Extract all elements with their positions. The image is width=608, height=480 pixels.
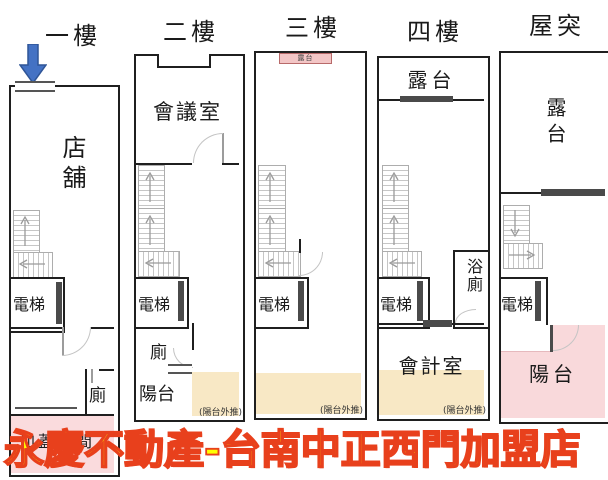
- elevator-door-bar: [298, 281, 304, 321]
- window-bar: [400, 96, 453, 102]
- room-label-terrace: 露台: [541, 97, 570, 149]
- window-lines: [168, 364, 192, 374]
- balcony-outset-note: (陽台外推): [443, 403, 486, 416]
- wall-notch: [157, 54, 211, 68]
- balcony-outset-note: (陽台外推): [320, 403, 363, 416]
- door-arc: [62, 327, 91, 356]
- plan-3f: 露台 電梯 (陽台外推): [254, 51, 367, 420]
- front-terrace-box: 露台: [279, 53, 332, 64]
- wall: [192, 323, 194, 350]
- window-bar: [423, 320, 452, 327]
- room-label-elevator: 電梯: [138, 291, 170, 315]
- wall: [222, 163, 239, 165]
- floor-title-roof: 屋突: [522, 6, 592, 41]
- elevator-door-bar: [417, 281, 423, 321]
- stair-arrow-up-icon: [388, 169, 400, 205]
- wall: [91, 327, 114, 329]
- entrance-door-lines: [15, 81, 55, 92]
- room-label-accounting: 會計室: [379, 350, 484, 379]
- wall: [11, 327, 63, 329]
- entrance-arrow-icon: [19, 44, 47, 84]
- room-label-terrace: 露台: [379, 64, 484, 93]
- elevator-door-bar: [56, 282, 62, 324]
- room-label-toilet: 廁: [89, 381, 106, 406]
- elevator-door-bar: [178, 281, 184, 321]
- room-label-elevator: 電梯: [258, 291, 290, 315]
- door-arc: [299, 252, 323, 276]
- elevator-door-bar: [535, 281, 541, 321]
- plan-2f: 會議室 電梯 廁 陽台 (陽台外推): [134, 54, 245, 422]
- stair-arrow-up-icon: [144, 212, 156, 248]
- floor-title-1f: 一樓: [38, 16, 108, 51]
- wall: [99, 369, 114, 371]
- stair-arrow-left-icon: [17, 258, 47, 270]
- plan-roof: 露台 電梯 陽台: [499, 51, 608, 424]
- stair-arrow-down-icon: [509, 208, 521, 240]
- agency-watermark: 永慶不動產-台南中正西門加盟店: [4, 428, 608, 472]
- floor-title-2f: 二樓: [156, 12, 226, 47]
- floor-title-4f: 四樓: [400, 12, 470, 47]
- stair-arrow-up-icon: [264, 212, 276, 248]
- stair-arrow-left-icon: [143, 257, 173, 269]
- wall: [85, 369, 87, 415]
- stair-arrow-up-icon: [19, 213, 31, 249]
- balcony-notch: [501, 325, 551, 352]
- room-label-meeting: 會議室: [136, 96, 239, 126]
- floor-title-3f: 三樓: [278, 8, 348, 43]
- room-label-balcony: 陽台: [501, 358, 605, 387]
- wall: [299, 239, 301, 253]
- plan-4f: 露台 電梯 浴廁 會計室 (陽台外推): [377, 56, 490, 421]
- floorplan-diagram: 一樓 二樓 三樓 四樓 屋突 店舖 電梯 廁 加蓋空間 會: [0, 0, 608, 480]
- room-label-shop: 店舖: [55, 135, 90, 195]
- stair-arrow-right-icon: [507, 249, 537, 261]
- window-bar: [541, 189, 605, 196]
- room-label-balcony: 陽台: [139, 380, 175, 406]
- stair-arrow-up-icon: [264, 169, 276, 205]
- room-label-elevator: 電梯: [13, 291, 45, 315]
- stair-arrow-left-icon: [387, 257, 417, 269]
- balcony-outset-note: (陽台外推): [199, 405, 242, 418]
- room-label-elevator: 電梯: [380, 291, 412, 315]
- room-label-elevator: 電梯: [501, 291, 533, 315]
- stair-arrow-up-icon: [144, 169, 156, 205]
- plan-1f: 店舖 電梯 廁 加蓋空間: [9, 85, 120, 477]
- stair-arrow-up-icon: [388, 212, 400, 248]
- door-arc: [193, 133, 223, 163]
- room-label-bathroom: 浴廁: [461, 258, 485, 294]
- room-label-toilet: 廁: [150, 338, 167, 363]
- stair-arrow-left-icon: [263, 257, 293, 269]
